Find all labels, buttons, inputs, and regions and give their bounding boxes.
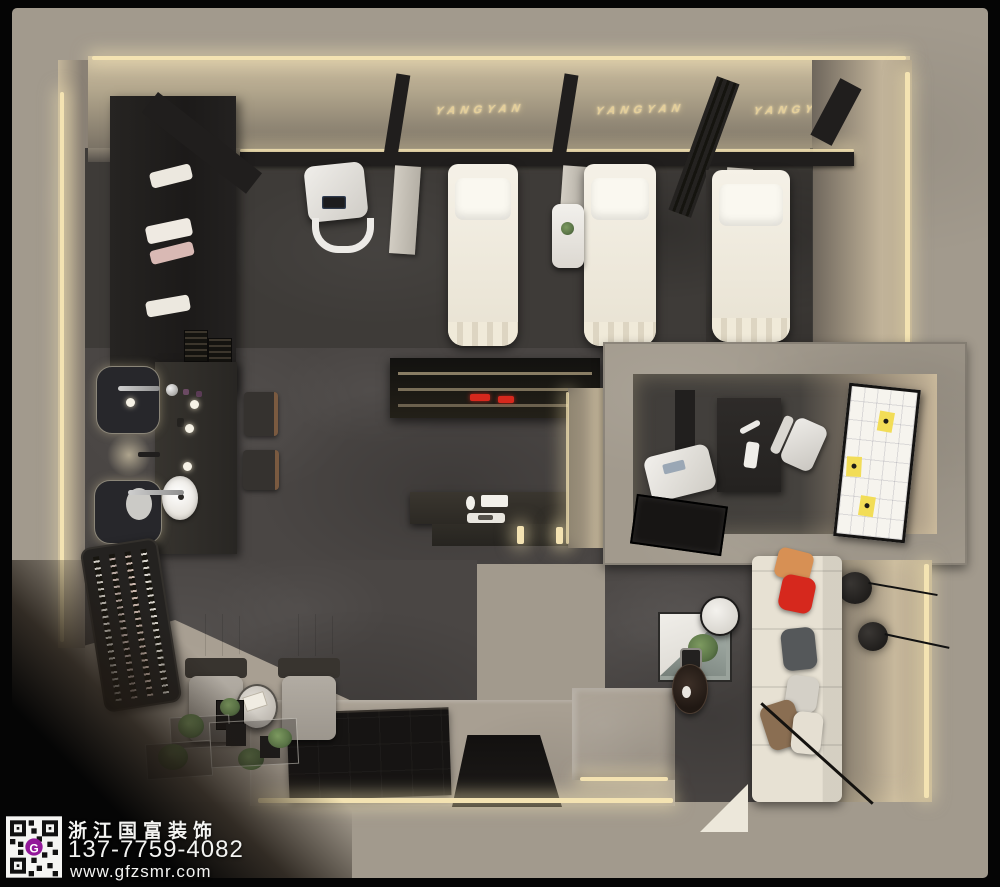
vanity-jar	[166, 384, 178, 396]
step-led-strip	[580, 777, 668, 781]
vanity-bottle-2	[196, 391, 202, 397]
facial-machine-screen	[322, 196, 346, 209]
display-stool-1	[244, 392, 278, 436]
sticky-note-2	[846, 456, 862, 477]
desk-keyboard	[481, 495, 508, 507]
desk-light-strip-1	[517, 526, 524, 544]
vanity-faucet-upper	[118, 386, 160, 391]
sofa-pillow-darkgray	[780, 626, 818, 671]
lounge-cove-light	[924, 564, 929, 798]
wall-lamp-1	[838, 572, 872, 604]
bed3-pillow	[719, 184, 783, 226]
treatment-bed-1	[448, 164, 518, 346]
bed1-drape	[448, 322, 518, 346]
treatment-bed-3	[712, 170, 790, 342]
wall-lamp-2	[858, 622, 888, 651]
watermark-website: www.gfzsmr.com	[70, 862, 212, 882]
sticky-note-1	[877, 411, 895, 433]
reception-desk-front	[432, 524, 576, 546]
vanity-bulb-1	[126, 398, 135, 407]
bed1-pillow	[455, 178, 511, 220]
red-product-1	[470, 394, 490, 401]
watermark: G 浙江国富装饰 137-7759-4082 www.gfzsmr.com	[6, 814, 336, 882]
watermark-phone: 137-7759-4082	[68, 836, 244, 864]
qr-logo-letter: G	[29, 841, 38, 855]
sticky3-dot	[864, 503, 870, 509]
treatment-bed-2	[584, 164, 656, 346]
bed3-drape	[712, 318, 790, 342]
red-product-2	[498, 396, 514, 403]
desk-oval-item	[466, 496, 475, 510]
trolley-plant	[561, 222, 574, 235]
shelf-slat-3	[398, 404, 592, 407]
display-stool-2	[243, 450, 279, 490]
sticky2-dot	[851, 463, 856, 468]
vanity-bottle-1	[183, 389, 189, 395]
salon-render: YANGYAN YANGYAN YANGYAN	[0, 0, 1000, 887]
qr-code: G	[6, 816, 62, 878]
top-cove-light	[92, 56, 906, 60]
right-cove-light	[905, 72, 910, 348]
vanity-bulb-2	[190, 400, 199, 409]
sconce-bracket	[138, 452, 160, 457]
coffee-table-round	[700, 596, 740, 636]
cabinet-display-cube-1	[184, 330, 208, 362]
desk-light-strip-2	[556, 527, 563, 544]
sticky1-dot	[883, 418, 889, 424]
office-west-face	[568, 388, 608, 548]
trolley-cart	[552, 204, 584, 268]
vanity-faucet-lower	[128, 490, 184, 495]
shelf-slat-1	[398, 372, 592, 375]
office-west-cove	[566, 392, 569, 544]
bed2-pillow	[591, 178, 649, 220]
vanity-bulb-3	[185, 424, 194, 433]
vanity-bulb-4	[183, 462, 192, 471]
shelf-slat-2	[398, 388, 592, 391]
sticky-note-3	[858, 495, 876, 517]
oval-tray-figurine	[682, 686, 691, 698]
office-room	[603, 342, 967, 565]
raised-step-block	[572, 688, 675, 780]
desk-tray-item	[478, 515, 493, 520]
facial-machine	[303, 161, 369, 223]
vanity-bottle-3	[177, 418, 184, 427]
